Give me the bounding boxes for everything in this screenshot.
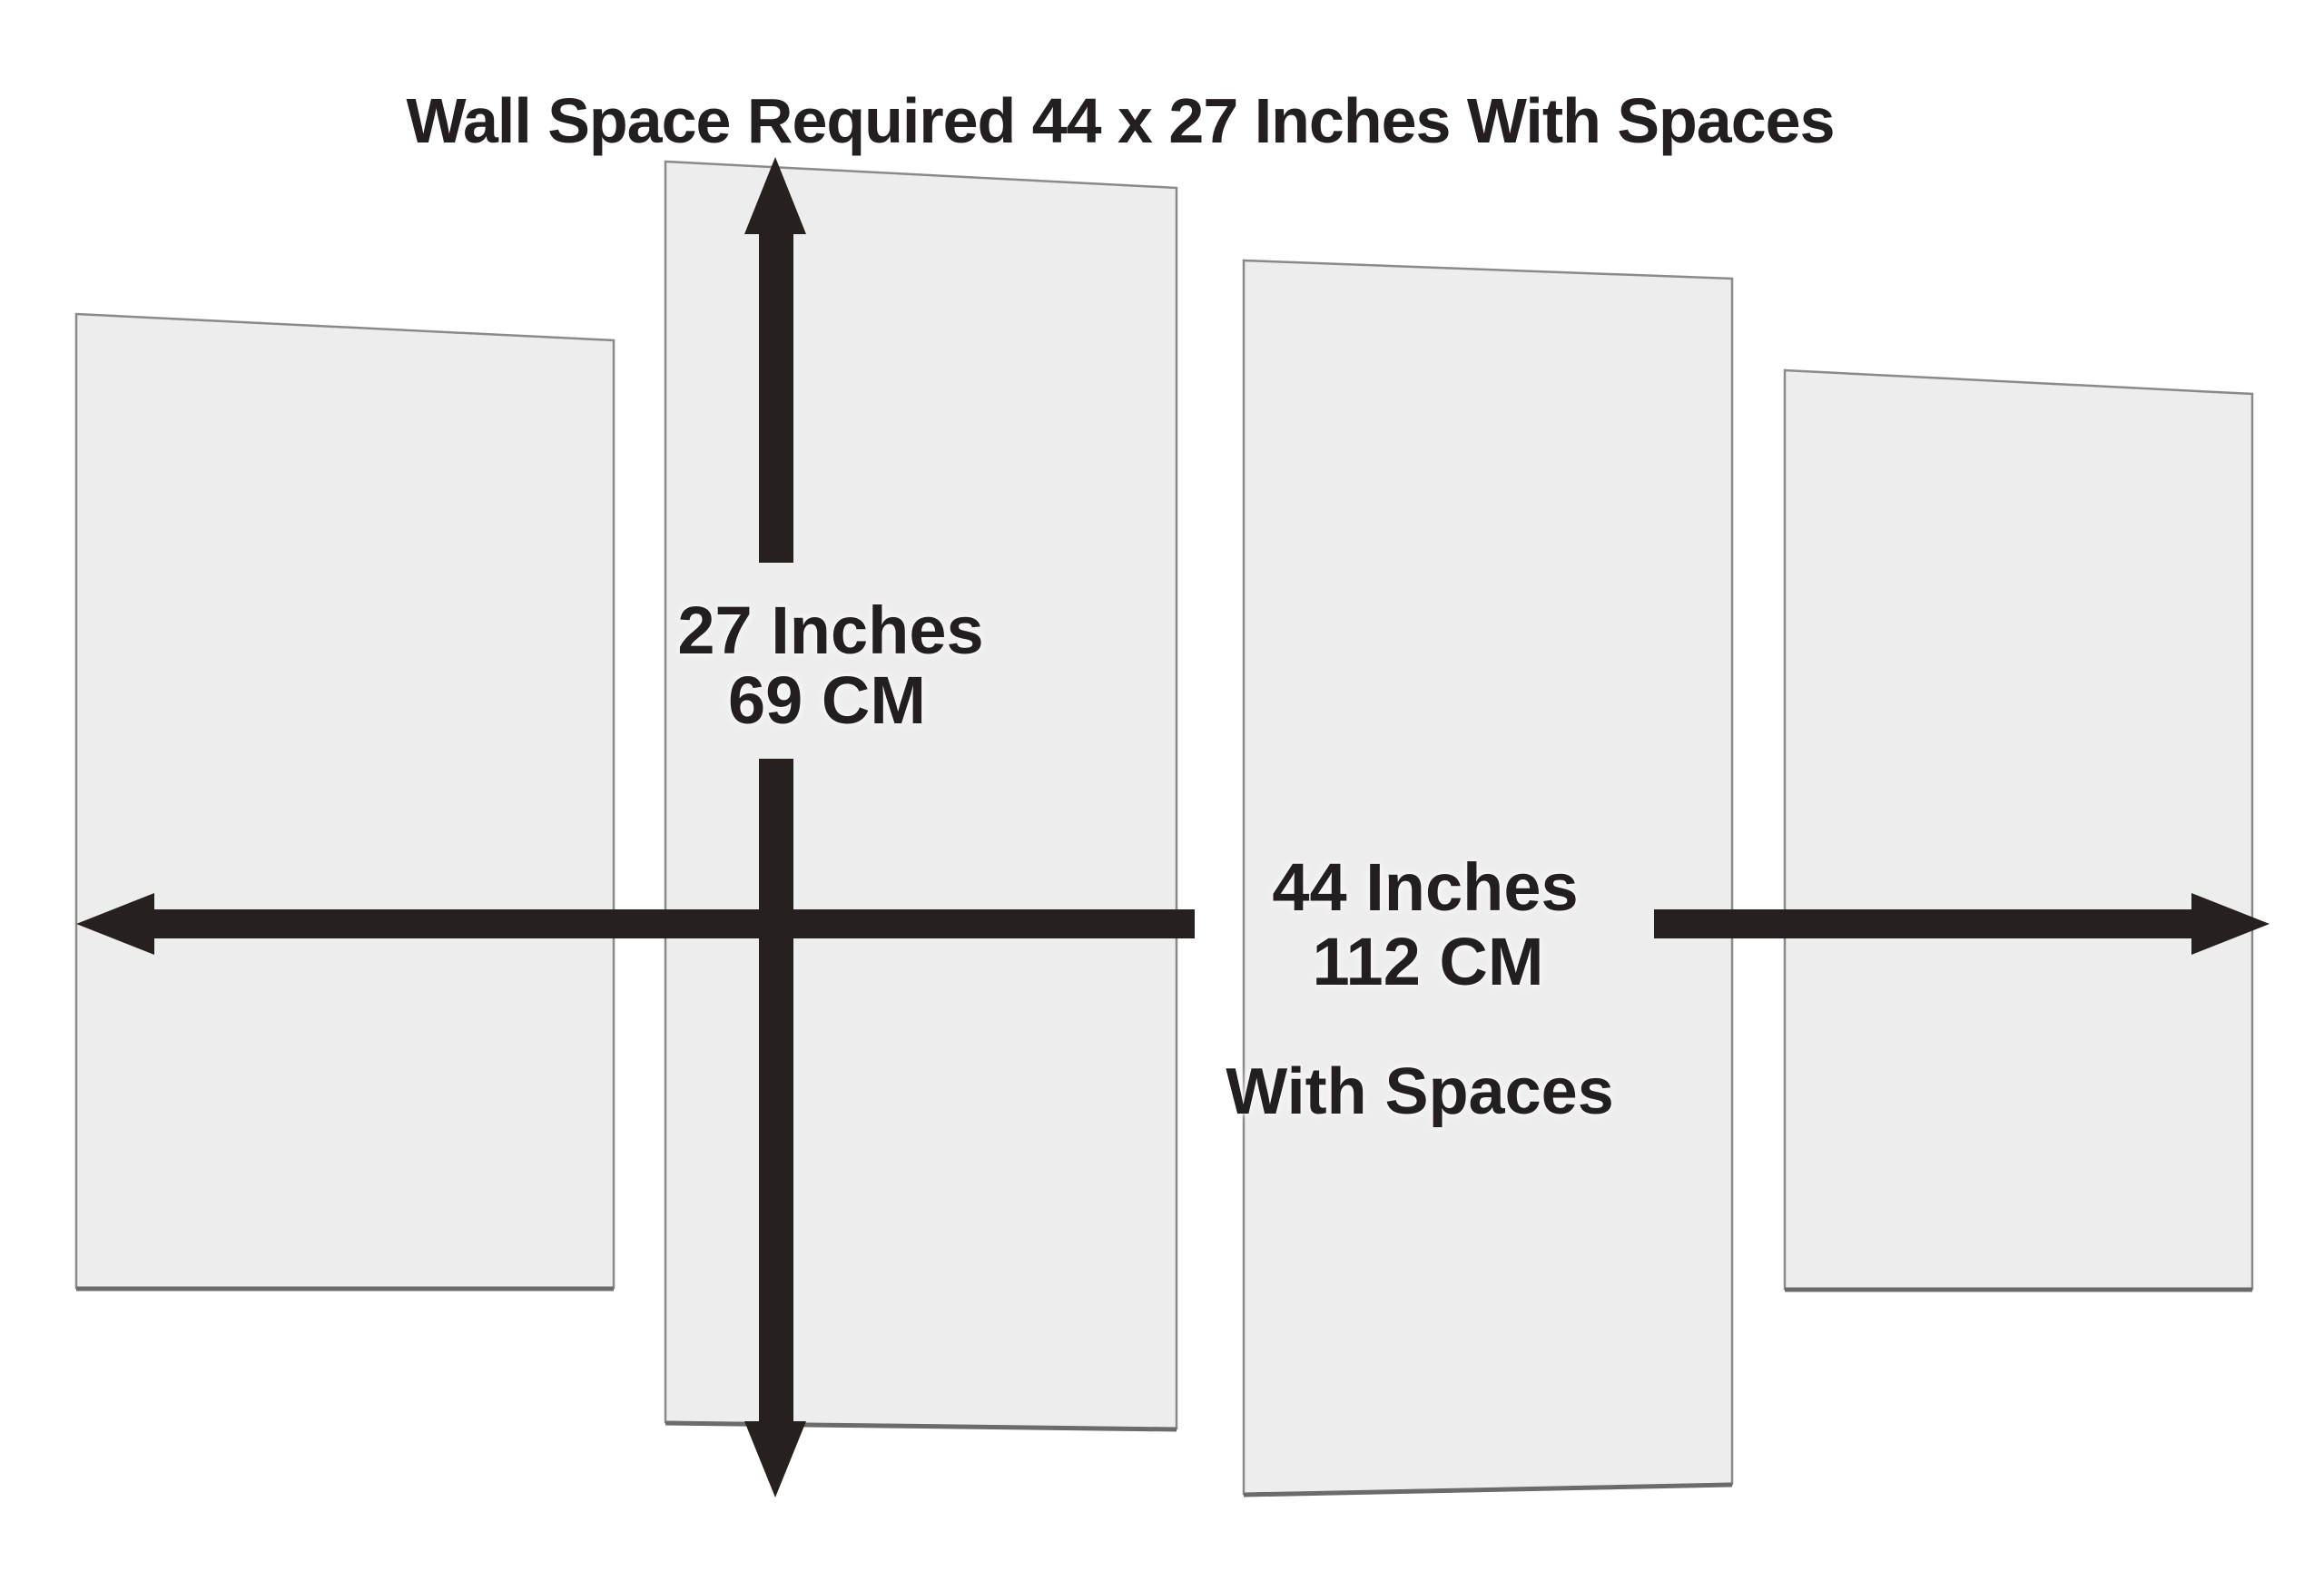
vertical-dimension-inches: 27 Inches xyxy=(677,597,983,664)
canvas-panel-4 xyxy=(1785,370,2252,1289)
dimension-diagram: Wall Space Required 44 x 27 Inches With … xyxy=(0,0,2324,1571)
canvas-panel-2 xyxy=(665,162,1177,1429)
vertical-dimension-cm: 69 CM xyxy=(728,667,926,734)
canvas-panel-1 xyxy=(76,314,614,1288)
page-title: Wall Space Required 44 x 27 Inches With … xyxy=(406,89,1834,152)
horizontal-dimension-inches: 44 Inches xyxy=(1272,854,1578,921)
horizontal-dimension-cm: 112 CM xyxy=(1312,928,1543,996)
horizontal-dimension-note: With Spaces xyxy=(1226,1059,1613,1124)
diagram-canvas xyxy=(0,0,2324,1571)
